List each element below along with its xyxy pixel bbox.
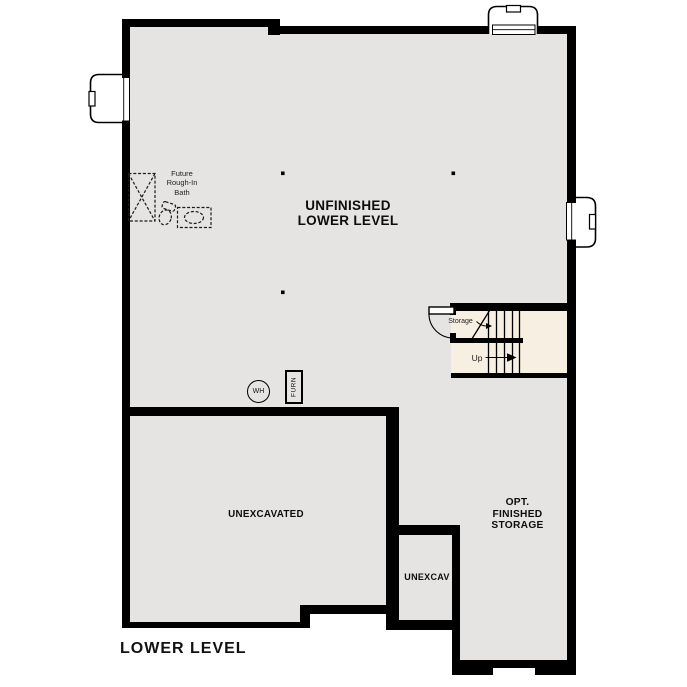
stair-up-label: Up xyxy=(468,353,486,363)
tub-icon xyxy=(129,174,156,222)
plan-linework xyxy=(0,0,687,687)
toilet-icon xyxy=(157,201,176,226)
column-dot xyxy=(452,172,456,176)
top-window-well-notch xyxy=(507,6,521,13)
unexcavated-label: UNEXCAVATED xyxy=(206,509,326,520)
left-window-well-notch xyxy=(89,92,95,107)
page-title: LOWER LEVEL xyxy=(120,640,320,658)
up-arrow-icon xyxy=(507,353,517,362)
tub-cross-line xyxy=(129,174,156,222)
future-bath-label: Future Rough-In Bath xyxy=(154,169,210,197)
column-dot xyxy=(281,291,285,295)
furnace-symbol: FURN xyxy=(285,370,303,404)
floor-plan: WH FURN Future Rough-In Bath UNFINISHED … xyxy=(0,0,687,687)
tub-cross-line xyxy=(129,174,156,222)
sink-bowl-icon xyxy=(185,212,204,224)
main-room-label: UNFINISHED LOWER LEVEL xyxy=(288,199,408,228)
unexcav-label: UNEXCAV xyxy=(397,572,457,582)
furnace-label: FURN xyxy=(291,377,298,397)
water-heater-label: WH xyxy=(253,388,265,395)
stair-treads-upper xyxy=(489,311,520,338)
stair-storage-label: Storage xyxy=(444,318,477,325)
water-heater-symbol: WH xyxy=(247,380,270,403)
right-window-well-notch xyxy=(590,215,596,230)
sink-counter-icon xyxy=(178,208,212,228)
opt-storage-label: OPT. FINISHED STORAGE xyxy=(486,497,549,532)
column-dot xyxy=(281,172,285,176)
storage-door-leaf xyxy=(429,307,454,314)
